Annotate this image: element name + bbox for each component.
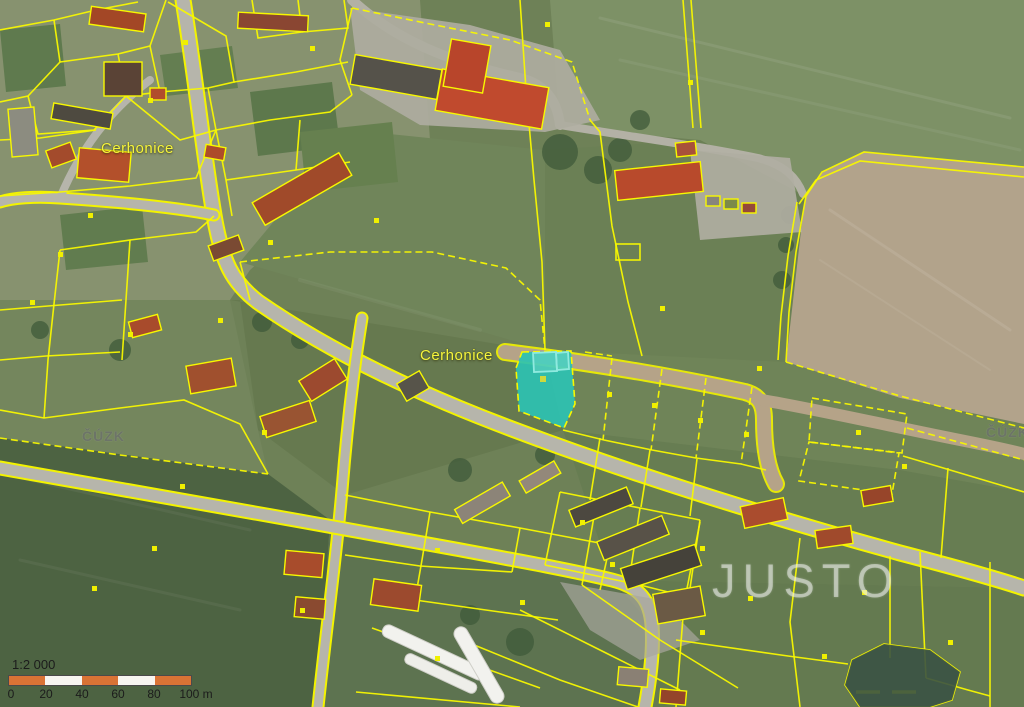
scale-tick-end: 100 m	[179, 687, 212, 701]
scale-tick: 0	[8, 687, 15, 701]
scale-bar-segments	[8, 675, 192, 686]
scale-segment	[9, 676, 45, 685]
scale-bar: 1:2 000 0 20 40 60 80 100 m	[8, 657, 228, 702]
scale-segment	[155, 676, 191, 685]
justo-watermark: JUSTO	[712, 553, 900, 608]
scale-segment	[82, 676, 118, 685]
scale-ratio: 1:2 000	[12, 657, 228, 672]
cuzk-watermark-left: ČÚZK	[82, 428, 125, 444]
village-label-center: Cerhonice	[420, 347, 493, 364]
cadastral-map-viewport[interactable]: Cerhonice Cerhonice ČÚZK ČÚZK JUSTO 1:2 …	[0, 0, 1024, 707]
scale-tick: 60	[111, 687, 124, 701]
village-label-north: Cerhonice	[101, 140, 174, 157]
scale-tick: 40	[75, 687, 88, 701]
cuzk-watermark-right: ČÚZK	[986, 424, 1024, 440]
scale-ticks: 0 20 40 60 80 100 m	[8, 687, 228, 702]
highlighted-parcel-building-outline	[533, 352, 569, 372]
scale-segment	[118, 676, 154, 685]
scale-tick: 80	[147, 687, 160, 701]
highlighted-parcel-number-marker	[540, 376, 546, 382]
scale-tick: 20	[39, 687, 52, 701]
scale-segment	[45, 676, 81, 685]
